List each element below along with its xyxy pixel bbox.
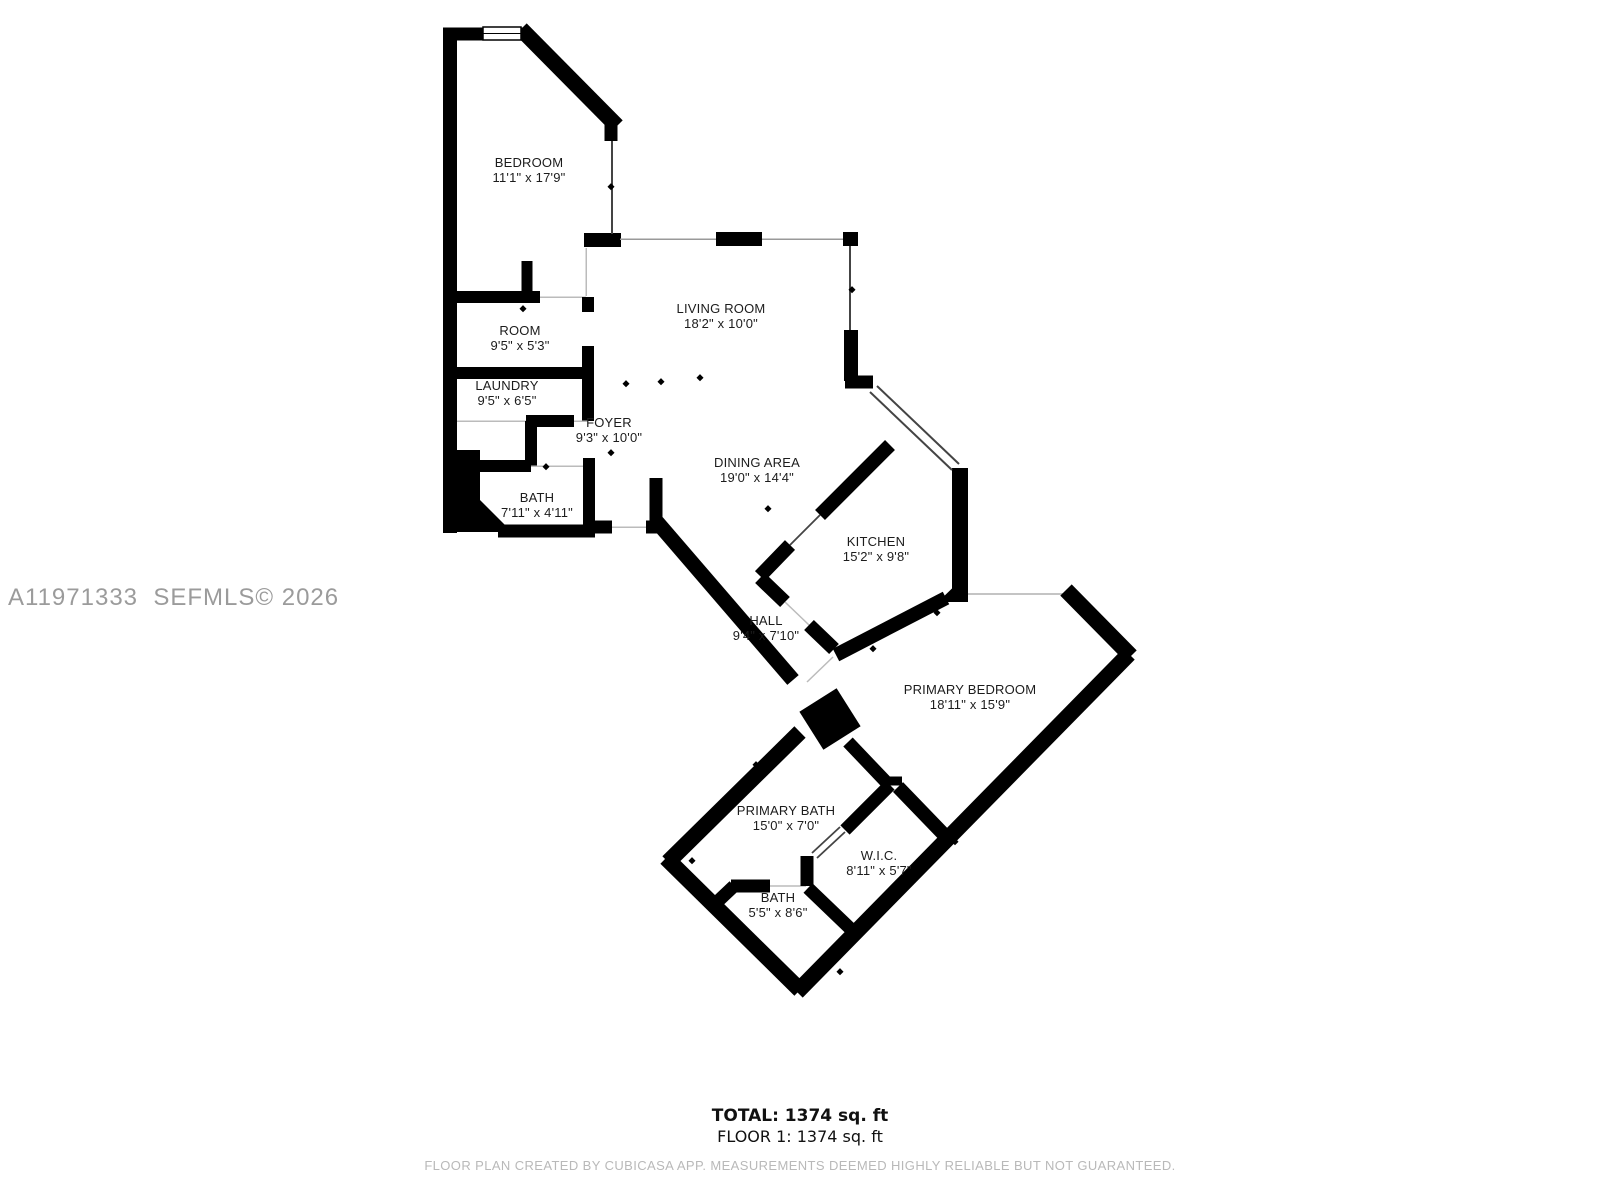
room-dimensions: 18'11" x 15'9" [904, 697, 1037, 712]
room-name: DINING AREA [714, 455, 800, 470]
total-area-text: TOTAL: 1374 sq. ft [0, 1106, 1600, 1126]
room-dimensions: 15'0" x 7'0" [737, 818, 835, 833]
room-label-bath: BATH 7'11" x 4'11" [501, 490, 573, 520]
room-dimensions: 9'3" x 10'0" [576, 430, 642, 445]
room-dimensions: 8'11" x 5'7" [846, 863, 912, 878]
room-name: HALL [733, 613, 799, 628]
room-dimensions: 9'5" x 6'5" [475, 393, 538, 408]
disclaimer-text: FLOOR PLAN CREATED BY CUBICASA APP. MEAS… [0, 1158, 1600, 1173]
room-label-room: ROOM 9'5" x 5'3" [490, 323, 549, 353]
room-label-foyer: FOYER 9'3" x 10'0" [576, 415, 642, 445]
room-dimensions: 7'11" x 4'11" [501, 505, 573, 520]
window-icon [483, 27, 521, 40]
room-name: LAUNDRY [475, 378, 538, 393]
room-label-primary-bedroom: PRIMARY BEDROOM 18'11" x 15'9" [904, 682, 1037, 712]
room-label-wic: W.I.C. 8'11" x 5'7" [846, 848, 912, 878]
room-dimensions: 18'2" x 10'0" [677, 316, 766, 331]
room-label-primary-bath: PRIMARY BATH 15'0" x 7'0" [737, 803, 835, 833]
floor-area-text: FLOOR 1: 1374 sq. ft [0, 1127, 1600, 1146]
room-name: PRIMARY BATH [737, 803, 835, 818]
room-label-dining-area: DINING AREA 19'0" x 14'4" [714, 455, 800, 485]
room-name: PRIMARY BEDROOM [904, 682, 1037, 697]
room-dimensions: 9'5" x 5'3" [490, 338, 549, 353]
room-name: BEDROOM [493, 155, 566, 170]
room-name: LIVING ROOM [677, 301, 766, 316]
room-dimensions: 9'4" x 7'10" [733, 628, 799, 643]
room-label-hall: HALL 9'4" x 7'10" [733, 613, 799, 643]
room-name: BATH [748, 890, 807, 905]
room-name: FOYER [576, 415, 642, 430]
room-name: W.I.C. [846, 848, 912, 863]
room-dimensions: 19'0" x 14'4" [714, 470, 800, 485]
room-label-bath-2: BATH 5'5" x 8'6" [748, 890, 807, 920]
room-label-kitchen: KITCHEN 15'2" x 9'8" [843, 534, 909, 564]
room-name: ROOM [490, 323, 549, 338]
room-dimensions: 5'5" x 8'6" [748, 905, 807, 920]
room-name: KITCHEN [843, 534, 909, 549]
mls-watermark: A11971333 SEFMLS© 2026 [8, 584, 339, 612]
room-dimensions: 15'2" x 9'8" [843, 549, 909, 564]
room-dimensions: 11'1" x 17'9" [493, 170, 566, 185]
floor-plan-page: BEDROOM 11'1" x 17'9" LIVING ROOM 18'2" … [0, 0, 1600, 1200]
room-label-bedroom: BEDROOM 11'1" x 17'9" [493, 155, 566, 185]
room-label-laundry: LAUNDRY 9'5" x 6'5" [475, 378, 538, 408]
room-label-living-room: LIVING ROOM 18'2" x 10'0" [677, 301, 766, 331]
room-name: BATH [501, 490, 573, 505]
